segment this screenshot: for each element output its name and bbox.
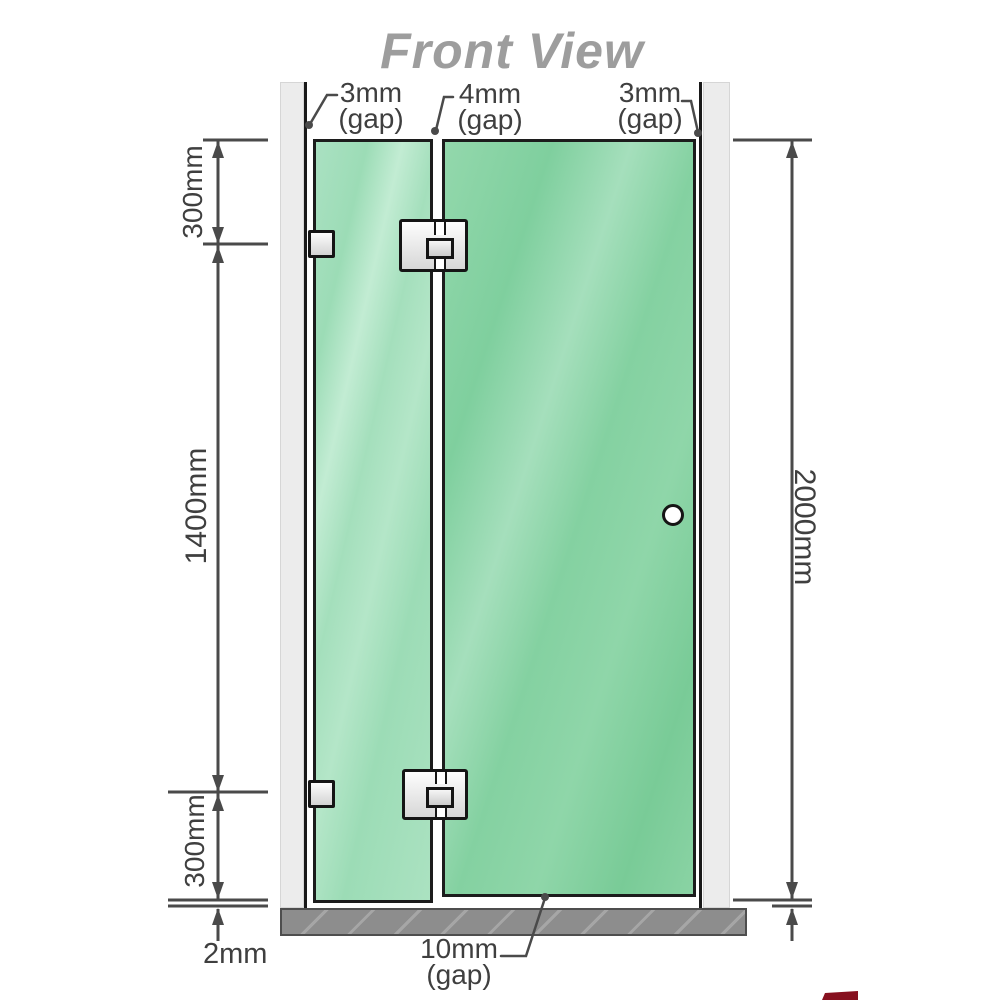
leader-dots: [305, 121, 702, 901]
gap-label-bottom: 10mm (gap): [411, 936, 507, 988]
gap-label-top-center: 4mm (gap): [442, 81, 538, 133]
dim-label-left-bottom: 300mm: [179, 794, 211, 887]
gap-suffix: (gap): [442, 107, 538, 133]
dim-label-right: 2000mm: [787, 469, 821, 586]
gap-label-top-right: 3mm (gap): [602, 80, 698, 132]
watermark-fragment: [822, 991, 858, 1000]
front-view-diagram: Front View: [0, 0, 1000, 1000]
dim-label-left-top: 300mm: [177, 145, 209, 238]
gap-suffix: (gap): [323, 106, 419, 132]
dimension-annotations: [0, 0, 1000, 1000]
gap-suffix: (gap): [602, 106, 698, 132]
dimension-arrowheads: [212, 141, 798, 925]
dim-label-left-middle: 1400mm: [180, 448, 214, 565]
leader-lines: [310, 95, 698, 956]
gap-suffix: (gap): [411, 962, 507, 988]
gap-label-top-left: 3mm (gap): [323, 80, 419, 132]
floor-gap-label: 2mm: [203, 938, 267, 971]
